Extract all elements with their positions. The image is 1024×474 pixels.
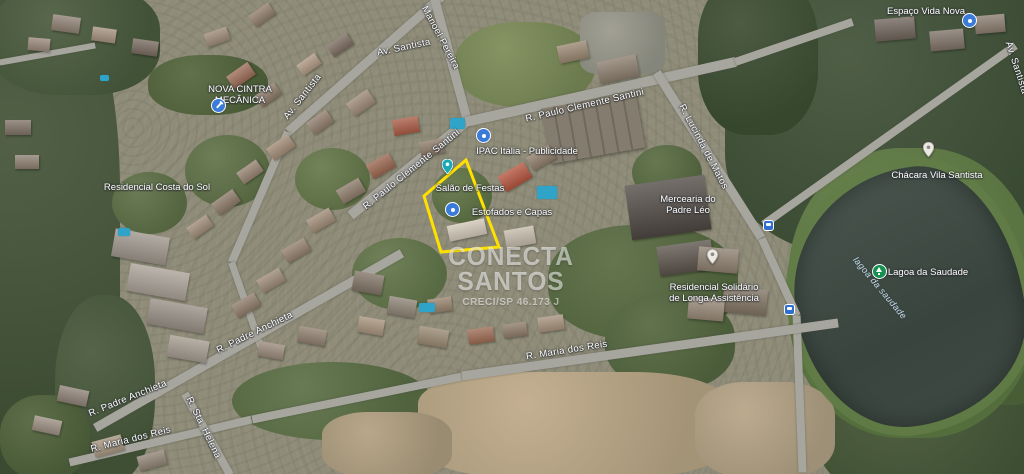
poi-label-salao-de-festas[interactable]: Salão de Festas bbox=[436, 183, 505, 194]
park-poi-icon[interactable] bbox=[873, 265, 886, 278]
satellite-map[interactable]: Av. Santista Av. Santista Manoel Pereira… bbox=[0, 0, 1024, 474]
poi-label-residencial-solidario[interactable]: Residencial Solidário de Longa Assistênc… bbox=[669, 282, 759, 304]
poi-line: Lagoa da Saudade bbox=[888, 267, 968, 278]
poi-line: Salão de Festas bbox=[436, 183, 505, 194]
poi-label-mercearia-padre-leo[interactable]: Mercearia do Padre Léo bbox=[660, 194, 715, 216]
mechanic-poi-icon[interactable] bbox=[212, 99, 225, 112]
poi-line: Estofados e Capas bbox=[472, 207, 552, 218]
dot-icon bbox=[482, 134, 486, 138]
pools-layer bbox=[0, 0, 1024, 474]
dot-icon bbox=[968, 19, 972, 23]
poi-line: NOVA CINTRA bbox=[208, 84, 272, 95]
upholstery-poi-icon[interactable] bbox=[446, 203, 459, 216]
poi-label-residencial-costa-do-sol[interactable]: Residencial Costa do Sol bbox=[104, 182, 210, 193]
poi-line: Espaço Vida Nova bbox=[887, 6, 965, 17]
dot-icon bbox=[451, 208, 455, 212]
place-pin-icon[interactable] bbox=[923, 142, 934, 157]
poi-label-estofados[interactable]: Estofados e Capas bbox=[472, 207, 552, 218]
bus-stop-icon[interactable] bbox=[764, 221, 773, 230]
venue-pin-icon[interactable] bbox=[442, 159, 453, 174]
poi-line: Padre Léo bbox=[660, 205, 715, 216]
wrench-icon bbox=[215, 102, 221, 109]
poi-label-chacara-vila-santista[interactable]: Chácara Vila Santista bbox=[891, 170, 982, 181]
business-poi-icon[interactable] bbox=[477, 129, 490, 142]
poi-label-ipac-italia[interactable]: IPAC Itália - Publicidade bbox=[476, 146, 578, 157]
poi-line: Mercearia do bbox=[660, 194, 715, 205]
venue-poi-icon[interactable] bbox=[963, 14, 976, 27]
poi-line: Residencial Costa do Sol bbox=[104, 182, 210, 193]
tree-icon bbox=[876, 267, 882, 272]
poi-label-lagoa-da-saudade[interactable]: Lagoa da Saudade bbox=[888, 267, 968, 278]
poi-line: Residencial Solidário bbox=[669, 282, 759, 293]
bus-stop-icon[interactable] bbox=[785, 305, 794, 314]
poi-label-espaco-vida-nova[interactable]: Espaço Vida Nova bbox=[887, 6, 965, 17]
poi-line: Chácara Vila Santista bbox=[891, 170, 982, 181]
place-pin-icon[interactable] bbox=[707, 249, 718, 264]
poi-line: de Longa Assistência bbox=[669, 293, 759, 304]
poi-line: IPAC Itália - Publicidade bbox=[476, 146, 578, 157]
